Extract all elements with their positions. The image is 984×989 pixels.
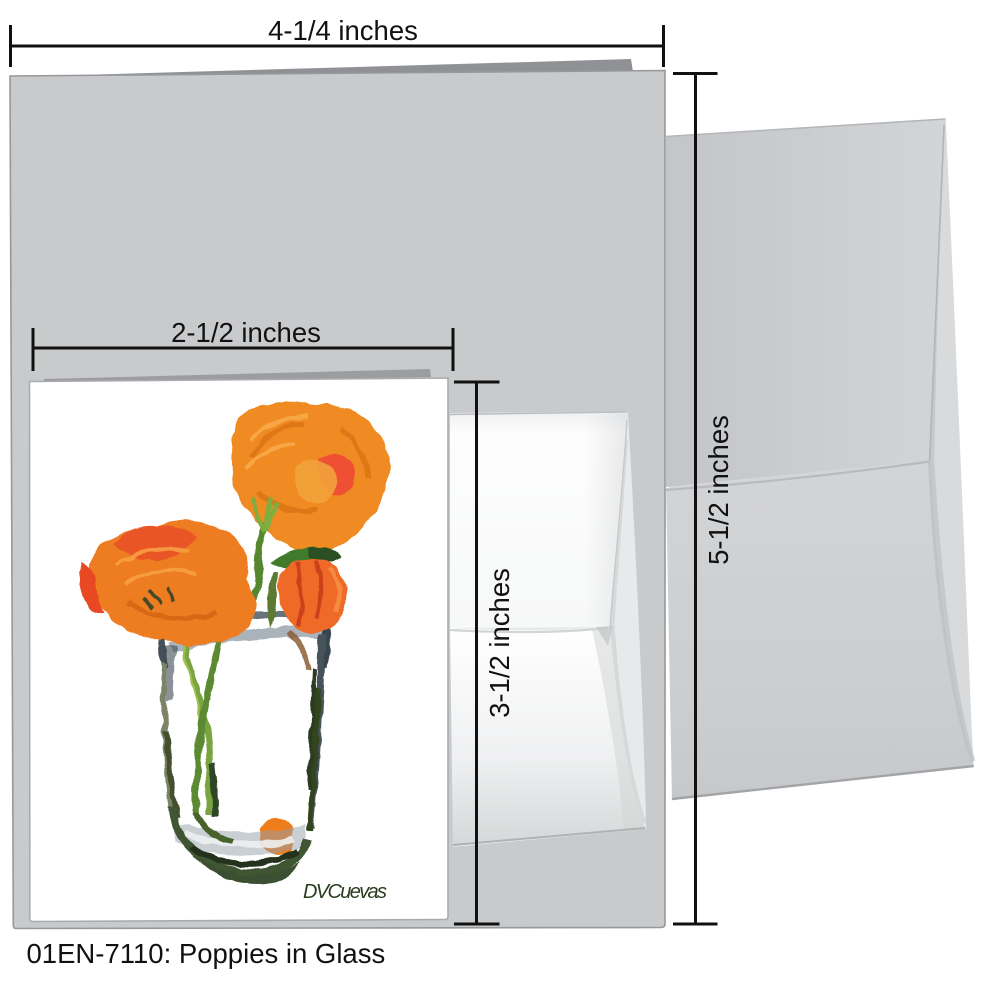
svg-text:01EN-7110: Poppies in Glass: 01EN-7110: Poppies in Glass <box>27 938 386 969</box>
svg-text:5-1/2 inches: 5-1/2 inches <box>703 415 734 565</box>
svg-text:2-1/2 inches: 2-1/2 inches <box>171 317 321 348</box>
svg-text:DVCuevas: DVCuevas <box>303 881 387 903</box>
svg-text:3-1/2 inches: 3-1/2 inches <box>484 568 515 718</box>
svg-text:4-1/4 inches: 4-1/4 inches <box>268 15 418 46</box>
